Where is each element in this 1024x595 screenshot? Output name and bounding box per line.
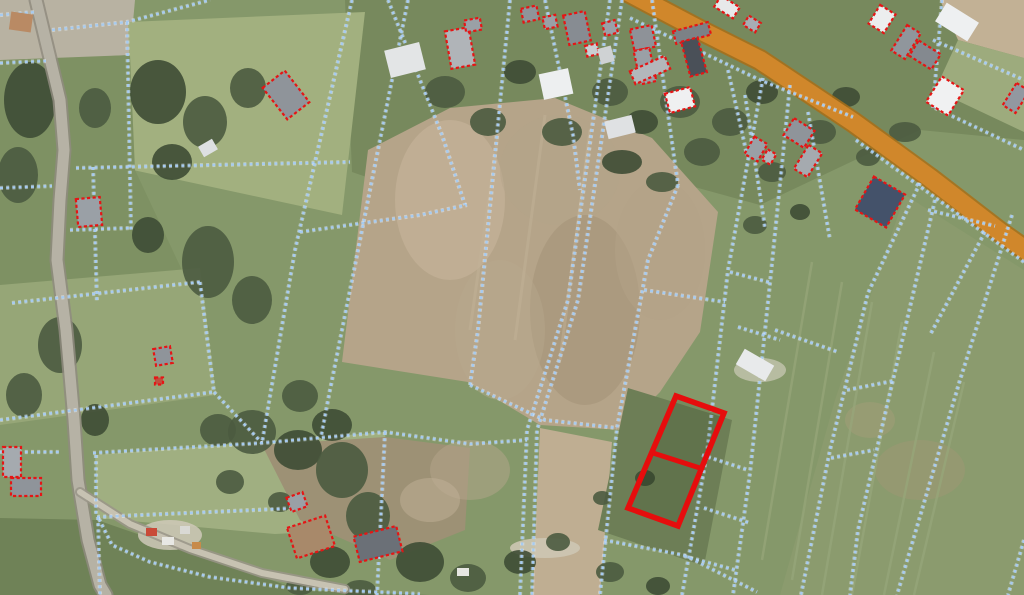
tree-cluster [152,144,192,180]
building-outline [11,478,41,496]
tree-cluster [546,533,570,551]
tree-cluster [79,88,111,128]
tree-cluster [132,217,164,253]
building-roof [153,346,173,366]
building-outline [153,346,173,366]
building-roof [585,43,599,56]
building-outline [464,18,482,33]
building-outline [155,378,163,385]
tree-cluster [602,150,642,174]
vehicle [457,568,469,576]
tree-cluster [232,276,272,324]
tree-cluster [684,138,720,166]
tree-cluster [316,442,368,498]
building [9,12,33,33]
map-viewport[interactable] [0,0,1024,595]
tree-cluster [646,172,678,192]
tree-cluster [130,60,186,124]
building-outline [630,25,656,51]
building-outline [76,197,102,227]
building-outline [585,43,599,56]
field-farmyard-topleft [0,0,135,62]
tree-cluster [230,68,266,108]
ground-patch [455,260,545,400]
building-outline [445,27,475,69]
ground-patch [400,478,460,522]
building-roof [11,478,41,496]
vehicle [162,537,174,545]
tree-cluster [396,542,444,582]
building-roof [3,447,21,477]
ground-patch [875,440,965,500]
tree-cluster [183,96,227,148]
building-roof [155,378,163,385]
ground-patch [615,180,705,320]
tree-cluster [790,204,810,220]
building-outline [3,447,21,477]
tree-cluster [282,380,318,412]
map-canvas[interactable] [0,0,1024,595]
vehicle [180,526,190,534]
building-roof [445,27,475,69]
tree-cluster [182,226,234,298]
vehicle [192,542,201,549]
vehicle [146,528,157,536]
tree-cluster [216,470,244,494]
building-roof [9,12,33,33]
tree-cluster [646,577,670,595]
tree-cluster [274,430,322,470]
building-roof [76,197,102,227]
tree-cluster [504,60,536,84]
building-roof [630,25,656,51]
tree-cluster [542,118,582,146]
building-roof [464,18,482,33]
tree-cluster [6,373,42,417]
